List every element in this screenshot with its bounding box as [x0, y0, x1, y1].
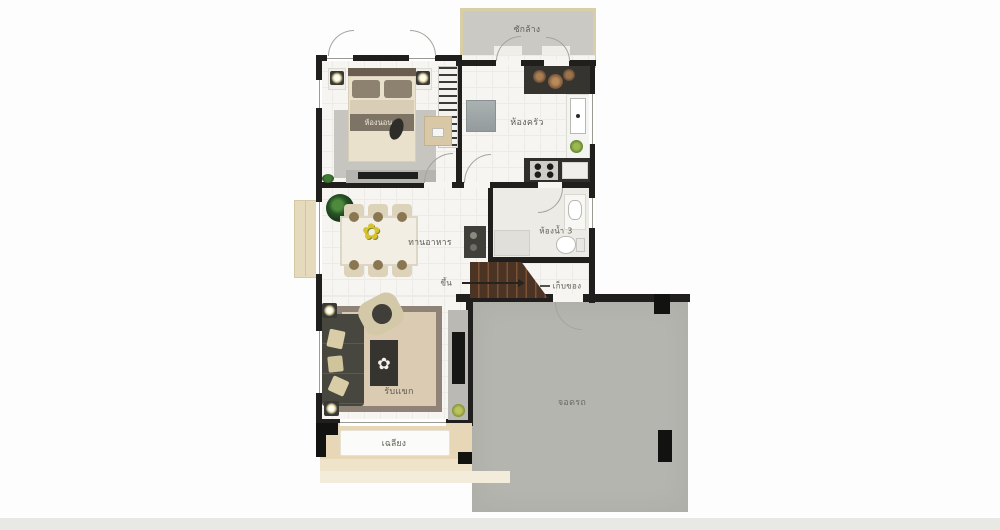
- sofa-pillow: [327, 355, 344, 372]
- window: [589, 94, 595, 144]
- sink-drain-icon: [576, 114, 580, 118]
- stairs-up-arrow-line: [462, 282, 518, 284]
- door-gap: [553, 294, 583, 302]
- kitchen-cabinet: [562, 162, 588, 179]
- chair-seat: [397, 260, 407, 270]
- bed-label-band: ห้องนอน 4: [350, 114, 414, 131]
- bed-pillow: [384, 80, 412, 98]
- sideboard-item: [470, 244, 477, 251]
- trash-bin-icon: [570, 140, 583, 153]
- side-deck-plank-line: [305, 201, 306, 276]
- bathroom3-label: ห้องน้ำ 3: [539, 225, 572, 238]
- window: [316, 331, 322, 393]
- floor-lamp-icon: [322, 303, 337, 318]
- dish-bowl-icon: [548, 74, 563, 89]
- porch-step: [320, 459, 472, 471]
- page-bottom-strip: [0, 518, 1000, 530]
- sideboard-item: [470, 232, 477, 239]
- window-swing-arc: [328, 30, 354, 56]
- nook-counter: [494, 230, 530, 256]
- coffee-table: ✿: [370, 340, 398, 386]
- window-swing-arc: [410, 30, 436, 56]
- sideboard: [464, 226, 486, 258]
- garage-post: [658, 430, 672, 462]
- sliding-door: [316, 202, 322, 274]
- window: [589, 198, 595, 228]
- stairs-up-label: ขึ้น: [440, 277, 452, 290]
- storage-label: เก็บของ: [553, 280, 582, 293]
- porch-step-lower: [320, 471, 510, 483]
- bedside-lamp-icon: [416, 71, 430, 85]
- toilet: [556, 236, 576, 254]
- dish-bowl-icon: [533, 70, 546, 83]
- french-door: [340, 419, 446, 426]
- dining-label: ทานอาหาร: [408, 235, 451, 249]
- small-plant-icon: [322, 174, 334, 183]
- porch-post: [458, 452, 472, 464]
- porch-post: [316, 423, 326, 457]
- tv: [452, 332, 465, 384]
- bath-sink: [568, 200, 582, 220]
- storage-leader-line: [540, 285, 550, 287]
- flower-icon: ✿: [377, 354, 390, 373]
- small-plant-icon: [452, 404, 465, 417]
- living-label: รับแขก: [384, 384, 413, 398]
- dish-bowl-icon: [563, 69, 575, 81]
- toilet-tank: [576, 238, 585, 252]
- window: [316, 80, 322, 108]
- refrigerator: [466, 100, 496, 132]
- bed-headboard: [348, 68, 416, 76]
- right-arrow-icon: [518, 279, 525, 287]
- stove: [530, 161, 558, 180]
- laundry-label: ซักล้าง: [514, 22, 541, 36]
- chair-seat: [349, 260, 359, 270]
- floor-plan: ห้องนอน 4 ✿: [0, 0, 1000, 530]
- chair-seat: [373, 260, 383, 270]
- garage-post: [654, 294, 670, 314]
- desk-laptop: [432, 128, 444, 137]
- carport-label: จอดรถ: [558, 395, 586, 409]
- porch-label: เฉลียง: [382, 436, 407, 450]
- chair-seat: [349, 212, 359, 222]
- bedside-lamp-icon: [330, 71, 344, 85]
- bedroom-tv: [358, 172, 418, 179]
- side-deck: [294, 200, 318, 278]
- flower-icon: ✿: [362, 222, 380, 244]
- floor-lamp-icon: [324, 401, 339, 416]
- kitchen-label: ห้องครัว: [510, 115, 543, 129]
- chair-seat: [397, 212, 407, 222]
- bed-blanket: [350, 100, 414, 114]
- bed-pillow: [352, 80, 380, 98]
